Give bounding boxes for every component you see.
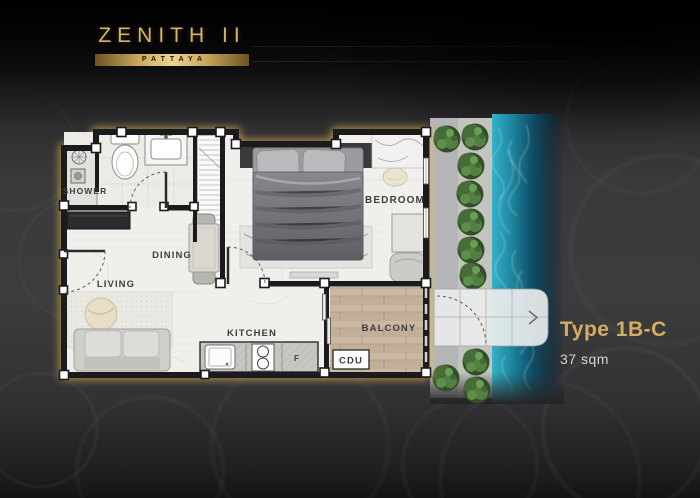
kitchen-sink-icon	[205, 345, 235, 369]
tree-icon	[457, 181, 484, 208]
cdu-box: CDU	[333, 350, 369, 369]
tree-icon	[433, 365, 460, 392]
wall-segment	[61, 205, 132, 211]
tree-icon	[458, 237, 485, 264]
bed	[253, 148, 363, 260]
pool-walkway-area	[430, 114, 564, 404]
sofa-cushion	[123, 331, 159, 357]
tv-shelf	[290, 272, 338, 278]
wall-segment	[193, 132, 197, 242]
sofa-cushion	[85, 331, 121, 357]
bedroom-desk	[392, 214, 426, 252]
tree-icon	[434, 126, 461, 153]
bathroom-sink-vanity	[145, 133, 187, 165]
tree-icon	[464, 377, 491, 404]
fridge-label: F	[294, 354, 300, 363]
tv-console	[67, 212, 130, 229]
unit-area-label: 37 sqm	[560, 351, 667, 367]
room-label-shower: SHOWER	[63, 186, 108, 196]
floorplan-graphic: F	[0, 0, 700, 498]
wall-segment	[220, 132, 225, 285]
cdu-label: CDU	[339, 356, 363, 367]
room-label-living: LIVING	[97, 279, 135, 290]
room-label-balcony: BALCONY	[362, 323, 417, 334]
tree-icon	[462, 124, 489, 151]
bedroom-armchair	[390, 253, 426, 282]
coffee-table	[85, 298, 117, 330]
tree-icon	[460, 263, 487, 290]
unit-type-label: Type 1B-C	[560, 318, 667, 342]
sofa	[74, 329, 170, 371]
room-label-kitchen: KITCHEN	[227, 328, 277, 339]
faucet-icon	[164, 135, 168, 139]
pouf	[383, 168, 407, 186]
pool-deck	[434, 289, 548, 346]
toilet-icon	[111, 134, 139, 179]
unit-info: Type 1B-C 37 sqm	[560, 318, 667, 367]
tree-icon	[458, 209, 485, 236]
duvet	[253, 172, 363, 260]
wall-segment	[264, 281, 426, 287]
tree-icon	[463, 349, 490, 376]
room-label-dining: DINING	[152, 250, 192, 261]
floor-drain-icon	[71, 169, 85, 183]
kitchen-counter: F	[200, 342, 318, 372]
tree-icon	[458, 153, 485, 180]
page-background: ZENITH II PATTAYA	[0, 0, 700, 498]
stove-icon	[252, 344, 274, 371]
room-label-bedroom: BEDROOM	[365, 195, 425, 206]
marble-feature-panel	[372, 134, 426, 168]
